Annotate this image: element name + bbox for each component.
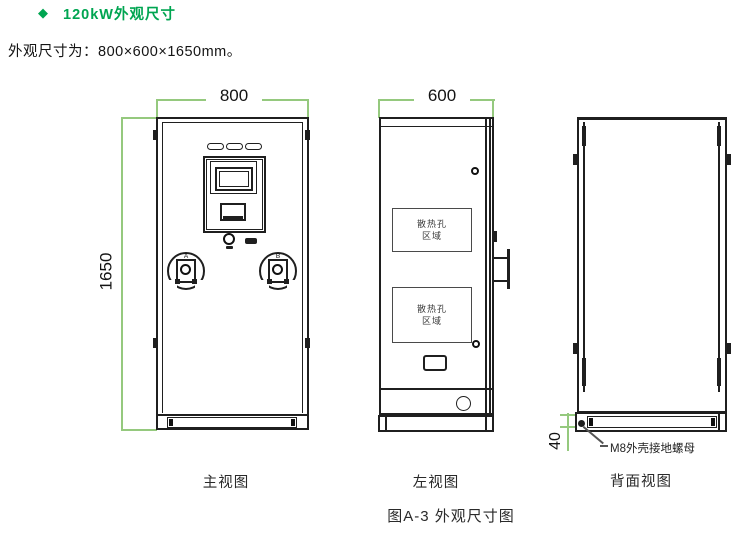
hinge-tab	[153, 338, 158, 348]
left-top-seam	[381, 126, 492, 127]
cable-gland-hole	[456, 396, 471, 411]
socket-foot	[267, 279, 272, 284]
door-edge-line	[489, 119, 491, 413]
base-dim-line	[567, 413, 569, 451]
cable-hook-arm	[494, 257, 508, 259]
hinge-tab	[305, 130, 310, 140]
dimensions-text: 外观尺寸为：800×600×1650mm。	[8, 40, 242, 61]
front-width-dim-ext-left	[156, 99, 158, 118]
gun-holder-b: B	[259, 252, 297, 290]
figure-caption: 图A-3 外观尺寸图	[340, 505, 562, 526]
left-bottom-seam	[381, 388, 492, 390]
front-plinth-recess	[167, 417, 297, 428]
side-lock-dot	[472, 340, 480, 348]
left-width-dim-ext-left	[378, 99, 380, 118]
vent-slot-icon	[207, 143, 224, 150]
hinge-hatch	[582, 358, 586, 386]
door-lock-icon	[223, 233, 235, 245]
left-width-dim-label: 600	[414, 87, 470, 104]
rear-tab	[493, 231, 497, 242]
ground-nut-label: M8外壳接地螺母	[610, 440, 695, 456]
leader-tail	[600, 445, 608, 447]
left-width-dim-ext-right	[492, 99, 494, 118]
vent-area-upper: 散热孔 区域	[392, 208, 472, 252]
door-edge-line	[485, 119, 487, 413]
front-cabinet-outline: A B	[156, 117, 309, 430]
front-height-dim-ext-bottom	[121, 429, 157, 431]
gun-socket-hole	[272, 264, 283, 275]
left-view-caption: 左视图	[380, 471, 492, 492]
side-handle	[423, 355, 447, 371]
front-width-dim-ext-right	[307, 99, 309, 118]
page-title: 120kW外观尺寸	[63, 3, 176, 24]
plinth-divider	[718, 414, 720, 430]
side-lock-dot	[471, 167, 479, 175]
left-cabinet-outline: 散热孔 区域 散热孔 区域	[379, 117, 494, 415]
hinge-hatch	[582, 126, 586, 146]
plinth-divider	[385, 417, 387, 430]
hinge-hatch	[717, 358, 721, 386]
base-dim-tick	[560, 414, 575, 416]
back-plinth-recess	[587, 416, 717, 428]
socket-foot	[284, 279, 289, 284]
screen-display	[219, 171, 249, 187]
vent-area-label-line2: 区域	[422, 230, 442, 242]
back-panel-edge	[718, 122, 720, 392]
socket-foot	[175, 279, 180, 284]
plinth-divider	[485, 417, 487, 430]
gun-socket-hole	[180, 264, 191, 275]
vent-slot-icon	[245, 143, 262, 150]
vent-area-label-line1: 散热孔	[417, 303, 447, 315]
hinge-tab	[727, 154, 731, 165]
hinge-tab	[573, 154, 577, 165]
socket-foot	[192, 279, 197, 284]
front-height-dim-ext-top	[121, 117, 157, 119]
front-height-dim-line	[121, 117, 123, 431]
hinge-tab	[153, 130, 158, 140]
hinge-tab	[573, 343, 577, 354]
cable-hook-bar	[507, 249, 510, 289]
gun-holder-a: A	[167, 252, 205, 290]
back-panel-edge	[583, 122, 585, 392]
hinge-hatch	[717, 126, 721, 146]
vent-slot-icon	[226, 143, 243, 150]
hinge-tab	[305, 338, 310, 348]
diamond-icon: ◆	[38, 5, 48, 21]
back-view-caption: 背面视图	[585, 470, 697, 491]
front-view-caption: 主视图	[170, 471, 282, 492]
vent-area-label-line1: 散热孔	[417, 218, 447, 230]
indicator-icon	[245, 238, 257, 244]
vent-area-lower: 散热孔 区域	[392, 287, 472, 343]
hinge-tab	[727, 343, 731, 354]
front-plinth-line	[158, 414, 307, 416]
front-width-dim-label: 800	[206, 87, 262, 104]
door-lock-base	[226, 246, 233, 249]
vent-area-label-line2: 区域	[422, 315, 442, 327]
back-cabinet-outline	[577, 117, 727, 413]
left-plinth	[378, 415, 494, 432]
front-height-dim-label: 1650	[92, 250, 120, 292]
base-dim-label: 40	[545, 428, 567, 454]
cable-hook-arm	[494, 280, 508, 282]
card-slot-opening	[223, 216, 243, 220]
